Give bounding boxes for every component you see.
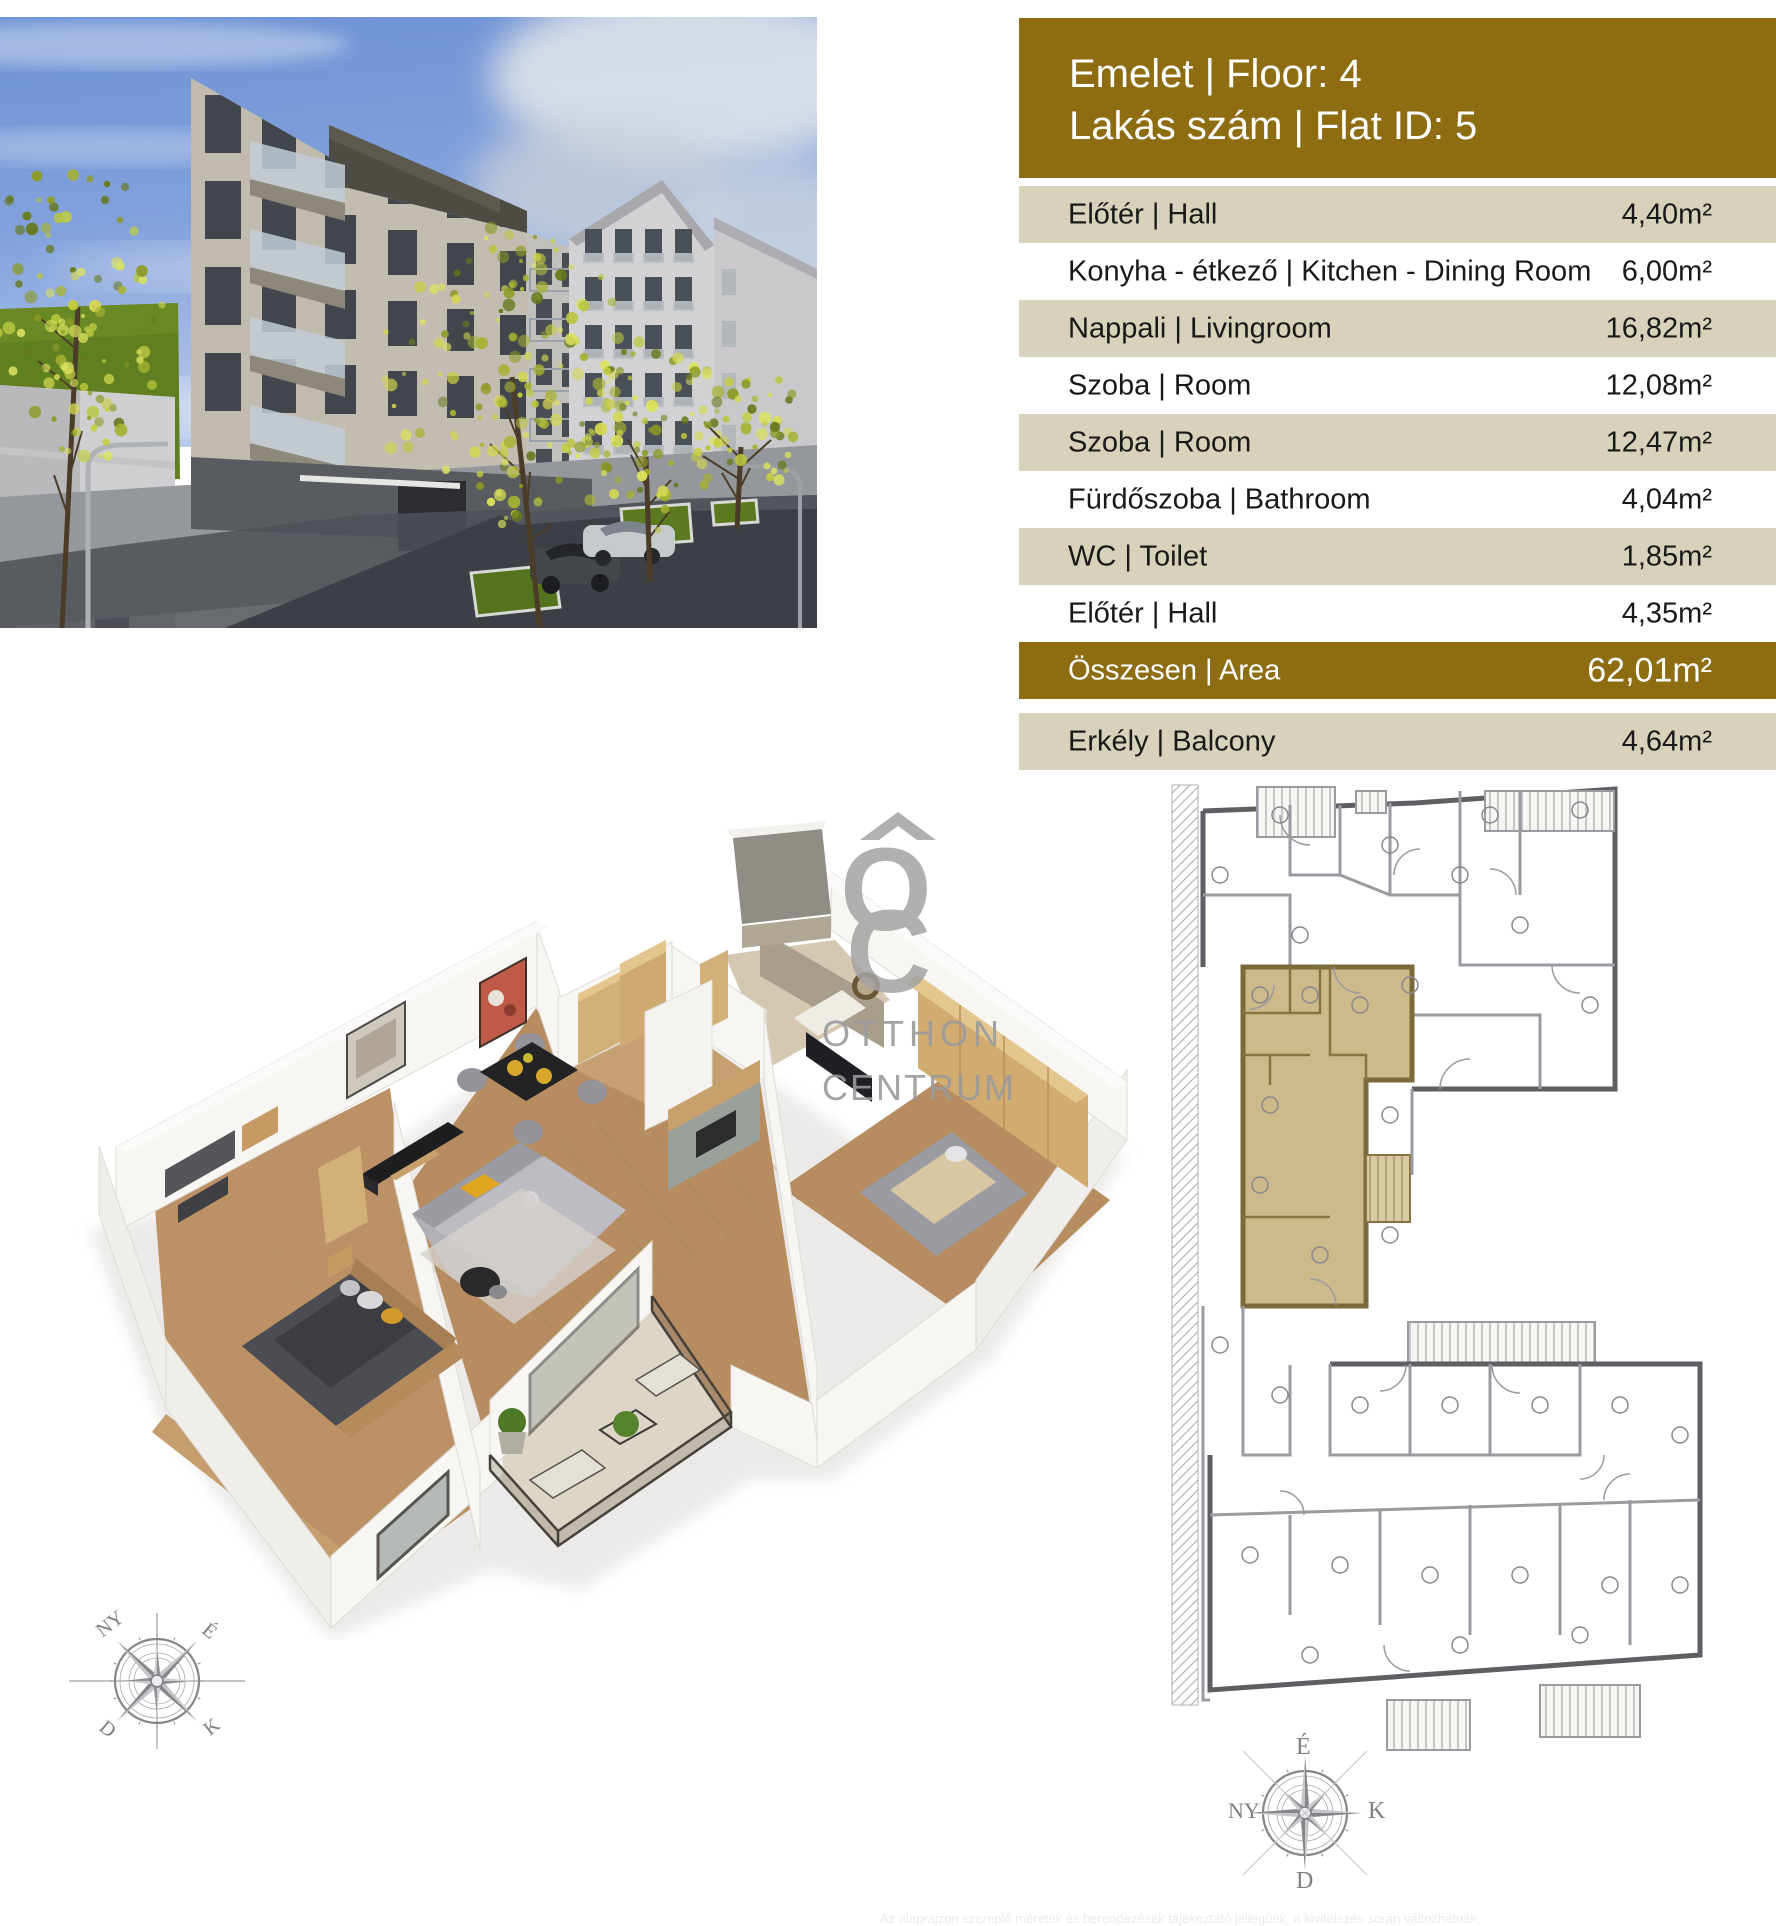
svg-text:C: C [846,886,931,1018]
svg-text:OTTHON: OTTHON [822,1013,1004,1054]
svg-text:CENTRUM: CENTRUM [822,1067,1016,1108]
